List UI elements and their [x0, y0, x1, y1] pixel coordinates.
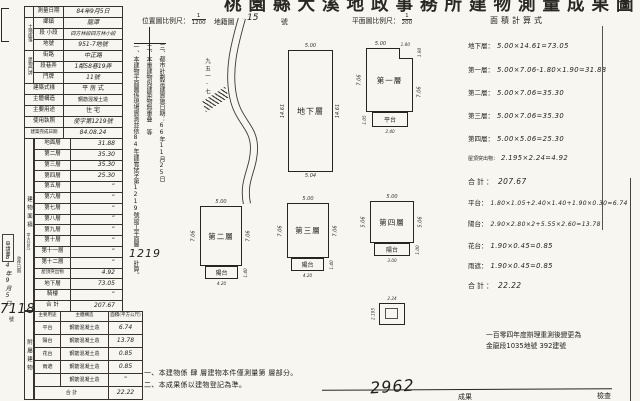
calc-label: 第一層：: [468, 64, 494, 74]
dim-bottom: 2.40: [385, 129, 394, 134]
calc-label: 第二層：: [468, 87, 494, 97]
info-label: 使用執照: [25, 117, 64, 128]
annex-row: 陽台 鋼筋混凝土造 13.78: [35, 335, 143, 348]
info-value: 84.08.24: [64, 128, 123, 139]
plan-floor1-platform: 平台 2.40 1.05: [372, 112, 408, 127]
annex-side-label: 附屬建物: [24, 311, 34, 400]
calc-label: 花台：: [468, 240, 488, 250]
info-row: 使用執照 使字第1219號: [25, 117, 123, 128]
annex-use: 花台: [35, 348, 61, 361]
calc-formula: 1.90×0.45=0.85: [491, 262, 553, 270]
floor-value: ”: [71, 257, 123, 268]
calc-line: 陽台：2.90×2.80×2+5.55×2.60=13.78: [468, 218, 601, 228]
floor-row: 第七層”: [35, 203, 123, 214]
floor-label: 第二層: [35, 149, 71, 160]
calc-label: 合計：: [468, 281, 495, 291]
calc-line: 屋頂突出物：2.195×2.24=4.92: [468, 154, 568, 162]
calc-formula: 1.80×1.05+2.40×1.40+1.90×0.30=6.74: [491, 200, 628, 207]
dim-right: 5.06: [417, 216, 423, 227]
info-value: 龍潭: [64, 18, 123, 29]
plan-scale-fraction: 1 200: [402, 13, 413, 26]
info-value: 951-7地號: [64, 40, 123, 51]
plan-floor3: 第三層 5.00 7.06 7.06: [287, 203, 329, 258]
dim-right: 7.06: [245, 230, 251, 241]
floor-row: 第二層35.30: [35, 149, 123, 160]
calc-formula: 22.22: [498, 281, 521, 290]
calc-line: 第一層：5.00×7.06-1.80×1.90=31.88: [468, 64, 607, 74]
survey-document-page: 桃園縣大溪地政事務所建物測量成果圖 位置圖比例尺： 1 1200 地籍圖 15 …: [0, 0, 640, 401]
annex-total-row: 合 計 22.22: [35, 387, 143, 400]
calc-formula: 2.195×2.24=4.92: [501, 154, 568, 162]
plan-roof-protrusion: 2.24 2.195: [379, 303, 405, 325]
calc-label: 陽台：: [468, 218, 488, 228]
floor-label: 地面層: [35, 139, 71, 150]
calc-label: 地下層：: [468, 40, 494, 50]
calc-formula: 207.67: [498, 177, 527, 186]
calc-formula: 5.00×7.06=35.30: [497, 112, 564, 120]
plan-label: 地下層: [289, 51, 332, 171]
annex-header: 主體構造: [61, 312, 109, 322]
calc-line: 第三層：5.00×7.06=35.30: [468, 110, 564, 120]
resurvey-note: 一百零四年度辦理重測後變更為 金龍段1035地號 392建號: [486, 330, 581, 351]
dim-bottom: 3.00: [387, 258, 396, 263]
floor-label: 地下層: [35, 279, 71, 290]
info-row: 測量日期 84年9月5日: [25, 7, 123, 18]
plan-floor1: 第一層 1.80 1.90 5.00 7.06 7.06: [366, 48, 413, 112]
location-scale: 位置圖比例尺： 1 1200: [142, 13, 206, 26]
floor-value: ”: [71, 236, 123, 247]
calc-formula: 1.90×0.45=0.85: [491, 242, 553, 250]
info-label: 主體構造: [25, 95, 64, 106]
floor-row: 第十一層”: [35, 246, 123, 257]
info-row: 建築式樣 平 房 式: [25, 84, 123, 95]
floor-value: 35.30: [71, 149, 123, 160]
annex-row: 花台 鋼筋混凝土造 0.85: [35, 348, 143, 361]
map-sheet-unit: 號: [281, 16, 288, 26]
calc-line: 平台：1.80×1.05+2.40×1.40+1.90×0.30=6.74: [468, 197, 628, 207]
calc-line: 地下層：5.00×14.61=73.05: [468, 40, 569, 50]
annex-use: 雨遮: [35, 361, 61, 374]
dim-left: 2.195: [371, 308, 376, 320]
info-label: 門牌: [34, 73, 64, 84]
bottom-note: 二、本成果係以建物登記為準。: [144, 380, 246, 390]
calc-label: 第四層：: [468, 133, 494, 143]
plan-floor4-balcony: 陽台 3.00 1.00: [374, 243, 410, 256]
info-label: 段 小段: [34, 29, 64, 40]
calc-line: 合計：207.67: [468, 177, 527, 187]
plan-label: 第二層: [201, 207, 241, 265]
receipt-date: 84年9月5日: [3, 254, 12, 307]
dim-left: 7.06: [278, 225, 284, 236]
floor-area-table: 地面層31.88 第二層35.30 第三層35.30 第四層25.30 第五層”…: [34, 138, 123, 312]
floor-label: 騎樓: [35, 290, 71, 301]
receipt-number-unit: 號: [9, 316, 14, 323]
calc-formula: 5.00×7.06=35.30: [497, 89, 564, 97]
info-value: 住 宅: [64, 106, 123, 117]
calc-label: 平台：: [468, 197, 488, 207]
floor-label: 第九層: [35, 225, 71, 236]
floor-row: 第五層”: [35, 182, 123, 193]
bottom-rule: [322, 388, 612, 391]
info-label: 段巷弄: [34, 62, 64, 73]
calc-line: 第四層：5.00×5.06=25.30: [468, 133, 564, 143]
page-title: 桃園縣大溪地政事務所建物測量成果圖: [224, 0, 640, 16]
floor-row: 第九層”: [35, 225, 123, 236]
info-value: 1鄰58巷19弄: [64, 62, 123, 73]
plan-label: 第三層: [288, 204, 328, 257]
calc-formula: 5.00×5.06=25.30: [497, 135, 564, 143]
info-label: 地號: [34, 40, 64, 51]
info-value: 使字第1219號: [64, 117, 123, 128]
area-calc-title: 面積計算式: [490, 15, 545, 26]
floor-row: 屋頂突出物4.92: [35, 268, 123, 279]
floor-value: ”: [71, 192, 123, 203]
info-label: 主要用途: [25, 106, 64, 117]
info-row: 門牌 11號: [25, 73, 123, 84]
calc-line: 雨遮：1.90×0.45=0.85: [468, 260, 553, 270]
floor-row: 騎樓”: [35, 290, 123, 301]
resurvey-note-line: 金龍段1035地號 392建號: [486, 341, 581, 352]
info-row: 段巷弄 1鄰58巷19弄: [25, 62, 123, 73]
annex-header: 主要用途: [35, 312, 61, 322]
floor-value: ”: [71, 203, 123, 214]
plan-annex-label: 平台: [373, 113, 407, 126]
north-cross-icon: [134, 43, 166, 44]
north-cross-icon: [149, 27, 150, 61]
info-label: 鄉鎮: [34, 18, 64, 29]
info-row: 土地座落 鄉鎮 龍潭: [25, 18, 123, 29]
check-label: 檢查: [597, 391, 611, 401]
dim-right: 1.40: [243, 268, 248, 277]
location-scale-label: 位置圖比例尺：: [142, 15, 190, 25]
floor-label: 第八層: [35, 214, 71, 225]
floor-row: 地下層73.05: [35, 279, 123, 290]
annex-row: 鋼筋混凝土造 ”: [35, 374, 143, 387]
info-label: 建築式樣: [25, 84, 64, 95]
corner-bracket: [1, 8, 9, 42]
dim-bottom: 4.20: [303, 273, 312, 278]
floor-value: ”: [71, 214, 123, 225]
calc-line: 花台：1.90×0.45=0.85: [468, 240, 553, 250]
floor-row: 第三層35.30: [35, 160, 123, 171]
floor-value: ”: [71, 182, 123, 193]
bottom-note: 一、本建物係 肆 層建物本件僅測量第 層部分。: [144, 368, 298, 378]
annex-row: 雨遮 鋼筋混凝土造 0.85: [35, 361, 143, 374]
note-line: 二、本重建物與建築物無重叠 等: [142, 44, 155, 366]
info-row: 主體構造 鋼筋混凝土造: [25, 95, 123, 106]
dim-right: 14.61: [335, 104, 341, 118]
floor-label: 第七層: [35, 203, 71, 214]
plan-floor3-balcony: 陽台 4.20 1.40: [291, 258, 324, 271]
calc-label: 雨遮：: [468, 260, 488, 270]
dim-left: 7.06: [191, 230, 197, 241]
floor-row: 地面層31.88: [35, 139, 123, 150]
floor-value: 31.88: [71, 139, 123, 150]
floor-row: 第八層”: [35, 214, 123, 225]
permit-number: 1219: [129, 247, 161, 260]
annex-table: 主要用途 主體構造 面積(平方公尺) 平台 鋼筋混凝土造 6.74 陽台 鋼筋混…: [34, 311, 143, 400]
info-value: 中正路: [64, 51, 123, 62]
calc-line: 合計：22.22: [468, 281, 521, 291]
info-group-empty: [25, 7, 34, 18]
dim-left: 5.06: [361, 216, 367, 227]
floor-row: 第四層25.30: [35, 171, 123, 182]
floor-value: 73.05: [71, 279, 123, 290]
info-value: 平 房 式: [64, 84, 123, 95]
plan-floor4: 第四層 5.00 5.06 5.06: [370, 201, 414, 243]
plan-floor2: 第二層 5.00 7.06 7.06: [200, 206, 242, 266]
dim-right: 7.06: [416, 87, 422, 98]
dim-top: 5.00: [386, 194, 397, 200]
dim-top: 5.00: [302, 196, 313, 202]
lot-number-label: 九五一-七: [203, 58, 211, 96]
calc-label: 合計：: [468, 177, 495, 187]
floor-value: 4.92: [71, 268, 123, 279]
calc-formula: 5.00×7.06-1.80×1.90=31.88: [497, 66, 607, 74]
calc-line: 第二層：5.00×7.06=35.30: [468, 87, 564, 97]
roof-inner-detail: [385, 308, 398, 319]
annex-total-label: 合 計: [35, 387, 109, 400]
dim-bottom: 4.20: [217, 281, 226, 286]
info-label: 建築完成日期: [25, 128, 64, 139]
info-row: 建築完成日期 84.08.24: [25, 128, 123, 139]
plan-annex-label: 陽台: [375, 244, 409, 255]
dim-right: 7.06: [332, 225, 338, 236]
info-row: 建物門牌 街路 中正路: [25, 51, 123, 62]
plan-notch: [399, 48, 413, 59]
plan-basement: 地下層 5.00 5.04 14.61 14.61: [288, 50, 333, 172]
floor-value: ”: [71, 246, 123, 257]
floor-label: 第四層: [35, 171, 71, 182]
annex-structure: 鋼筋混凝土造: [61, 348, 109, 361]
annex-use: [35, 374, 61, 387]
floor-total-row: 合 計207.67: [35, 300, 123, 311]
dim-bottom: 5.04: [305, 173, 316, 179]
annex-row: 平台 鋼筋混凝土造 6.74: [35, 322, 143, 335]
floor-label: 第十一層: [35, 246, 71, 257]
corner-mark: 2: [624, 1, 628, 9]
annex-structure: 鋼筋混凝土造: [61, 361, 109, 374]
dim-top: 2.24: [387, 296, 396, 301]
dim-notch-width: 1.80: [401, 42, 410, 47]
plan-annex-label: 陽台: [292, 259, 323, 270]
receipt-date-label: 收件日期: [15, 256, 21, 273]
annex-structure: 鋼筋混凝土造: [61, 374, 109, 387]
info-value: 四方林段四方林小段: [64, 29, 123, 40]
plan-scale-label: 平面圖比例尺：: [352, 15, 400, 25]
house-group-label: 建物門牌: [25, 51, 34, 84]
floor-value: 25.30: [71, 171, 123, 182]
info-row: 主要用途 住 宅: [25, 106, 123, 117]
note-line: 三、都市計劃禁建實施日期：66年11月25日: [155, 44, 168, 366]
dim-right: 1.40: [329, 260, 334, 269]
floor-row: 第十二層”: [35, 257, 123, 268]
floor-row: 第十層”: [35, 236, 123, 247]
calc-formula: 2.90×2.80×2+5.55×2.60=13.78: [491, 221, 601, 228]
annex-total-value: 22.22: [109, 387, 143, 400]
annex-use: 陽台: [35, 335, 61, 348]
receipt-number: 7118: [0, 302, 35, 317]
calc-formula: 5.00×14.61=73.05: [497, 42, 569, 50]
info-value: 84年9月5日: [64, 7, 123, 18]
result-label: 成果: [458, 392, 472, 401]
floor-total-value: 207.67: [71, 300, 123, 311]
fold-line: [602, 26, 603, 230]
floor-value: 35.30: [71, 160, 123, 171]
location-scale-fraction: 1 1200: [192, 13, 206, 26]
dim-left: 7.06: [357, 74, 363, 85]
calc-label: 第三層：: [468, 110, 494, 120]
floor-value: ”: [71, 225, 123, 236]
right-border-line: [630, 178, 631, 401]
annex-area: ”: [109, 374, 143, 387]
info-value: 11號: [64, 73, 123, 84]
floor-label: 第六層: [35, 192, 71, 203]
note-line: 一、本建物平面圖係現場實測並依84年建管使字第1219號竣工平面圖繪製計算。: [129, 44, 142, 366]
dim-left: 14.61: [280, 104, 286, 118]
plan-floor2-balcony: 陽台 4.20 1.40: [205, 266, 238, 279]
dim-left: 1.05: [362, 115, 367, 124]
dim-top: 5.00: [375, 41, 386, 47]
floor-total-label: 合 計: [35, 300, 71, 311]
road-outline: [226, 18, 272, 204]
plan-scale: 平面圖比例尺： 1 200: [352, 13, 412, 26]
info-row: 地號 951-7地號: [25, 40, 123, 51]
info-value: 鋼筋混凝土造: [64, 95, 123, 106]
floor-area-side-label: 建物面積（平方公尺）: [24, 138, 34, 311]
vertical-notes: 三、都市計劃禁建實施日期：66年11月25日 二、本重建物與建築物無重叠 等 一…: [128, 44, 168, 366]
annex-structure: 鋼筋混凝土造: [61, 322, 109, 335]
info-table: 測量日期 84年9月5日 土地座落 鄉鎮 龍潭 段 小段 四方林段四方林小段 地…: [24, 6, 123, 139]
dim-right: 1.00: [415, 245, 420, 254]
floor-label: 屋頂突出物: [35, 268, 71, 279]
floor-label: 第五層: [35, 182, 71, 193]
floor-label: 第十層: [35, 236, 71, 247]
floor-label: 第三層: [35, 160, 71, 171]
info-label: 測量日期: [34, 7, 64, 18]
annex-use: 平台: [35, 322, 61, 335]
floor-row: 第六層”: [35, 192, 123, 203]
annex-structure: 鋼筋混凝土造: [61, 335, 109, 348]
dim-top: 5.00: [305, 43, 316, 49]
floor-label: 第十二層: [35, 257, 71, 268]
annex-header-row: 主要用途 主體構造 面積(平方公尺): [35, 312, 143, 322]
plan-annex-label: 陽台: [206, 267, 237, 278]
calc-label: 屋頂突出物：: [468, 155, 498, 162]
info-row: 段 小段 四方林段四方林小段: [25, 29, 123, 40]
dim-top: 5.00: [215, 199, 226, 205]
info-label: 街路: [34, 51, 64, 62]
land-group-label: 土地座落: [25, 18, 34, 51]
handwritten-number: 2962: [369, 375, 415, 397]
plan-label: 第四層: [371, 202, 413, 242]
dim-notch-height: 1.90: [417, 48, 422, 57]
resurvey-note-line: 一百零四年度辦理重測後變更為: [486, 330, 581, 341]
floor-value: ”: [71, 290, 123, 301]
